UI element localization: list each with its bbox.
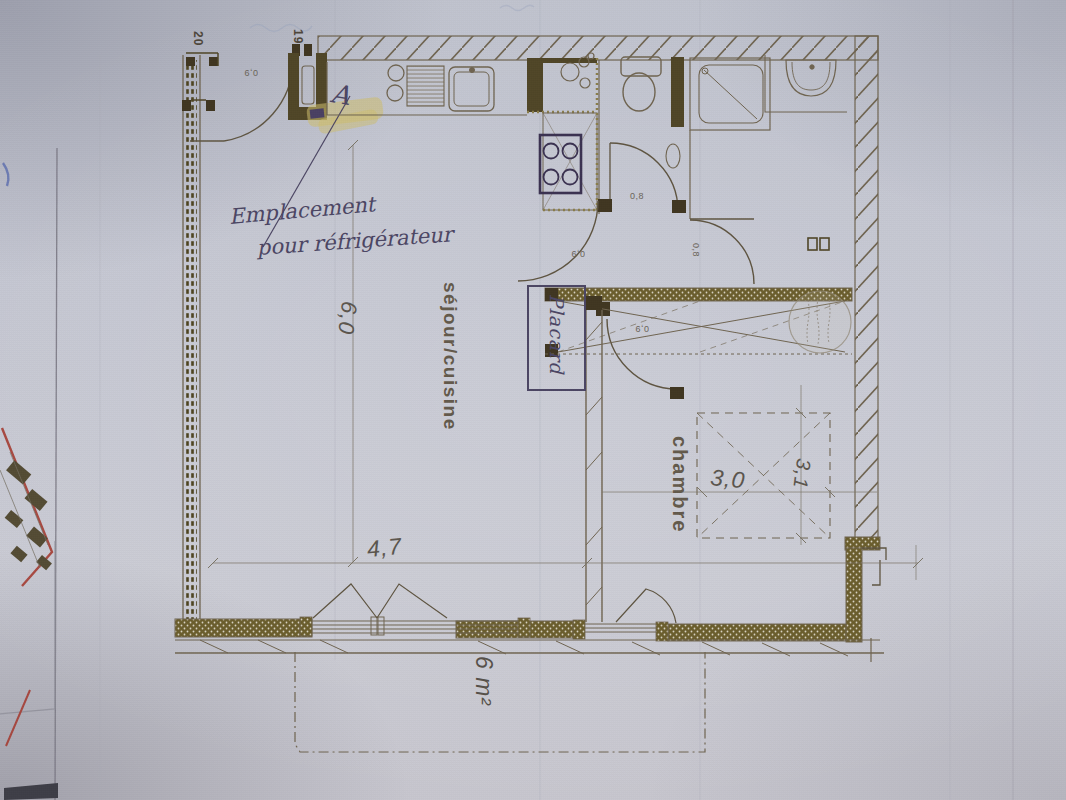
bleed-through-marks xyxy=(250,5,534,31)
downpipe-hook xyxy=(862,548,886,585)
closet-label: Placard xyxy=(546,294,568,374)
floor-plan-photo: 20 19 0,9 0,8 0,9 0,8 0,9 séjour/cuisine… xyxy=(0,0,1066,800)
wall-duct xyxy=(666,144,680,168)
room-label-bedroom: chambre xyxy=(668,436,691,533)
underlying-page-fragment xyxy=(0,55,100,800)
wc-door-width: 0,8 xyxy=(630,191,644,201)
kitchen-strip xyxy=(527,53,597,210)
ink-mark xyxy=(310,108,325,118)
dim-bedroom-depth: 3,1 xyxy=(788,457,815,490)
balcony-outline xyxy=(295,652,705,752)
bathroom-door-width: 0,8 xyxy=(691,243,701,257)
floor-plan-drawing xyxy=(0,0,1066,800)
right-wall xyxy=(855,36,878,545)
bedroom-dimension-lines xyxy=(602,385,877,545)
top-wall xyxy=(318,36,878,60)
toilet-icon xyxy=(621,57,661,111)
hob-burner-icon xyxy=(388,65,404,81)
shower-icon xyxy=(690,58,770,130)
entry-door-arc xyxy=(224,62,293,141)
casement-swing xyxy=(616,589,676,623)
radiator-icon xyxy=(808,238,829,250)
exterior-walls xyxy=(175,36,886,662)
blue-pen-mark xyxy=(3,163,8,186)
hob-burner-icon xyxy=(387,85,403,101)
dim-bedroom-width: 3,0 xyxy=(709,464,747,495)
bathroom xyxy=(690,55,847,284)
bedroom-door-width: 0,9 xyxy=(635,324,649,334)
balcony-area-label: 6 m² xyxy=(470,656,497,706)
hall-door-arc xyxy=(518,201,598,281)
left-wall xyxy=(182,53,218,622)
dim-living-width: 4,7 xyxy=(366,533,403,563)
kitchen-sink-icon xyxy=(449,67,494,111)
room-label-living: séjour/cuisine xyxy=(439,282,461,431)
casement-swing xyxy=(313,584,447,618)
door-number-20: 20 xyxy=(191,31,205,46)
entry-door-width: 0,9 xyxy=(244,68,258,78)
door-number-19: 19 xyxy=(291,29,305,44)
bedroom-window xyxy=(573,589,676,641)
drainer-icon xyxy=(407,66,444,106)
dim-living-depth: 6,0 xyxy=(332,300,362,337)
dark-edge-bar xyxy=(4,783,58,800)
underlying-red-plan xyxy=(0,428,52,746)
water-meter-stamp xyxy=(789,291,851,353)
hall-door-width: 0,9 xyxy=(571,249,585,259)
wc-bath-wall xyxy=(671,57,684,127)
washbasin-icon xyxy=(765,55,847,112)
facade-lines xyxy=(175,638,884,662)
